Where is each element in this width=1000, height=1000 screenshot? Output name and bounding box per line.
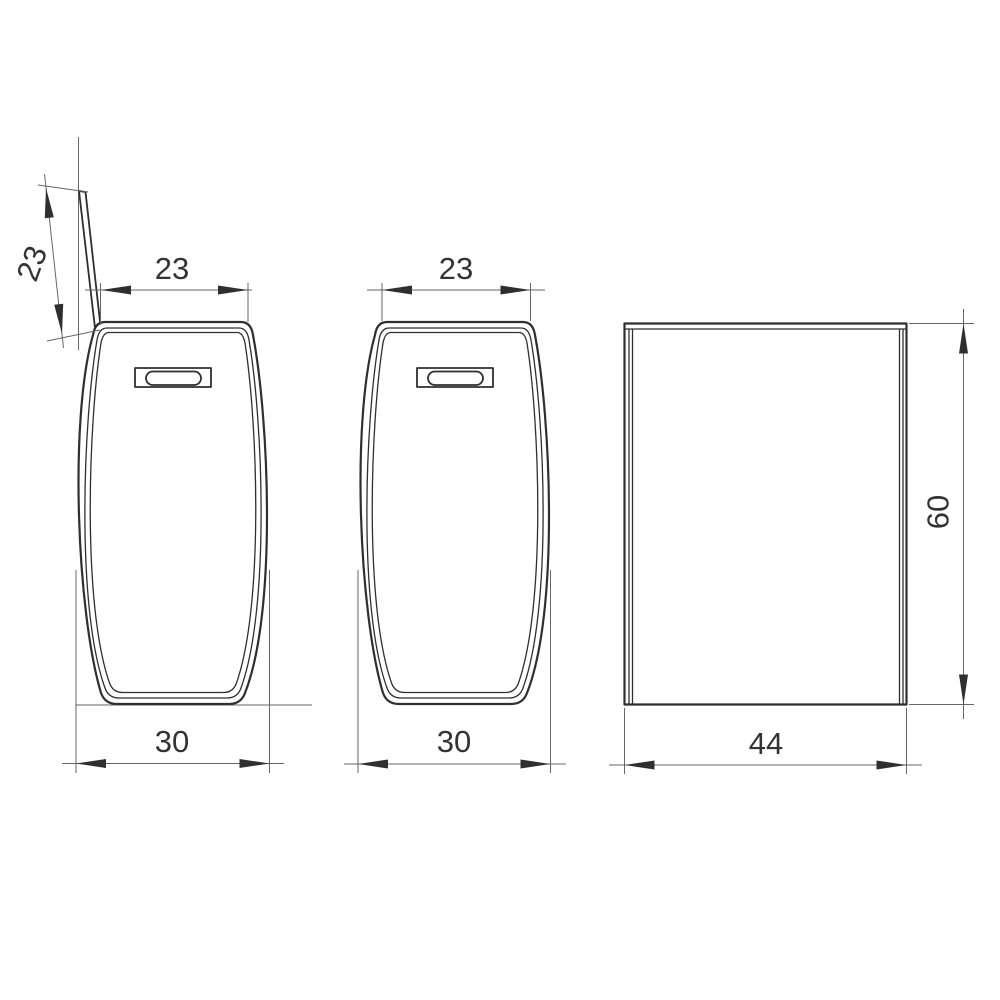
arrowhead-icon [101, 286, 131, 295]
arrowhead-icon [877, 761, 907, 770]
dimension-value: 30 [155, 724, 189, 759]
dimension-top-width: 23 [85, 251, 252, 325]
front-view-lid-closed: 23 30 [344, 251, 566, 773]
arrowhead-icon [76, 759, 106, 768]
handle-opening [146, 372, 201, 386]
dimension-top-width: 23 [367, 251, 545, 321]
arrowhead-icon [959, 675, 968, 705]
side-view: 44 60 [609, 309, 974, 774]
arrowhead-icon [382, 286, 412, 295]
arrowhead-icon [54, 304, 63, 334]
dimension-value: 23 [155, 251, 189, 286]
arrowhead-icon [45, 188, 54, 218]
dimension-value: 23 [439, 251, 473, 286]
arrowhead-icon [521, 760, 551, 769]
technical-drawing: 23 23 30 [0, 0, 1000, 1000]
dimension-value: 44 [749, 726, 783, 761]
dimension-height: 60 [909, 309, 974, 719]
dimension-depth: 44 [609, 708, 922, 774]
arrowhead-icon [625, 761, 655, 770]
dimension-value: 30 [437, 724, 471, 759]
body-outline [625, 324, 907, 705]
front-view-lid-open: 23 23 30 [10, 137, 312, 773]
drawing-canvas: 23 23 30 [0, 0, 1000, 1000]
handle-opening [428, 372, 483, 386]
arrowhead-icon [240, 759, 270, 768]
dimension-value: 60 [921, 495, 956, 529]
arrowhead-icon [358, 760, 388, 769]
arrowhead-icon [501, 286, 531, 295]
open-lid [79, 191, 101, 328]
arrowhead-icon [218, 286, 248, 295]
arrowhead-icon [959, 324, 968, 354]
dimension-value: 23 [10, 241, 55, 285]
